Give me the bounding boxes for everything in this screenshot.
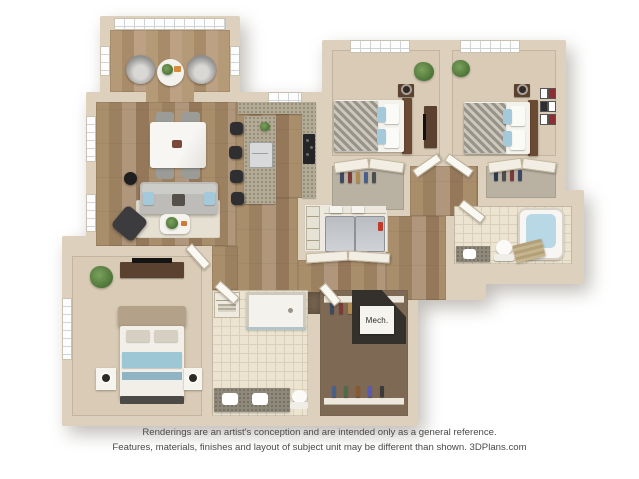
- hall-vanity-sink: [463, 249, 476, 259]
- master-pillow-2: [154, 330, 178, 342]
- coffee-table-plant: [166, 217, 178, 229]
- cooktop-burner-1: [306, 139, 309, 142]
- hall-floor-center: [236, 198, 298, 298]
- dining-centerpiece: [172, 140, 182, 148]
- gallery-frame-5: [540, 114, 548, 125]
- closet3-clothes-4: [518, 170, 522, 181]
- side-table: [124, 172, 137, 185]
- coffee-table-books: [181, 221, 187, 226]
- bedroom2-duvet: [334, 101, 378, 151]
- closet2-clothes-4: [364, 172, 368, 183]
- master-headboard: [118, 306, 186, 326]
- closet2-clothes-2: [348, 172, 352, 183]
- master-pillow-1: [126, 330, 150, 342]
- washer: [325, 216, 355, 252]
- laundry-basket-1: [330, 206, 342, 213]
- sunroom-window-right: [230, 46, 240, 76]
- master-toilet-tank: [290, 402, 308, 409]
- bar-stool-3: [230, 170, 243, 183]
- mechanical-unit-label: Mech.: [360, 306, 394, 334]
- kitchen-counter-top: [238, 102, 316, 114]
- bedroom3-lamp: [519, 86, 526, 93]
- cooktop: [303, 134, 315, 164]
- bar-stool-1: [230, 122, 243, 135]
- disclaimer-caption: Renderings are an artist's conception an…: [0, 425, 639, 455]
- sofa-pillow-blue-right: [204, 192, 215, 205]
- linen-towels: [218, 304, 236, 312]
- bedroom2-plant: [414, 62, 434, 81]
- bedroom3-window: [460, 40, 520, 53]
- master-dresser: [120, 262, 184, 278]
- sunroom-chair-left: [126, 55, 155, 84]
- master-bench: [120, 396, 184, 404]
- bedroom2-pillow-blue-2: [377, 129, 386, 144]
- bedroom2-pillow-blue-1: [377, 107, 386, 122]
- master-lamp-left: [102, 374, 110, 382]
- sunroom-window-wall: [114, 18, 226, 30]
- bedroom2-lamp: [403, 86, 410, 93]
- bedroom3-pillow-2: [510, 130, 525, 150]
- master-tv: [132, 258, 172, 263]
- wic-clothes-4: [332, 386, 336, 397]
- gallery-frame-2: [548, 88, 556, 99]
- hall-toilet-tank: [494, 254, 514, 261]
- sunroom-chair-right: [187, 55, 216, 84]
- gallery-frame-6: [548, 114, 556, 125]
- bedroom3-plant: [452, 60, 470, 77]
- pantry-shelf-line-1: [307, 216, 319, 217]
- bedroom2-tv: [423, 114, 426, 140]
- bedroom2-pillow-2: [384, 128, 399, 148]
- gallery-frame-1: [540, 88, 548, 99]
- wic-clothes-8: [380, 386, 384, 397]
- cooktop-burner-2: [310, 146, 313, 149]
- closet2-clothes-3: [356, 172, 360, 183]
- wic-clothes-6: [356, 386, 360, 397]
- floor-plan-image: Mech. Renderings are an artist's concept…: [0, 0, 639, 479]
- wic-clothes-2: [339, 303, 343, 314]
- island-plant: [260, 122, 270, 131]
- bar-stool-4: [231, 192, 244, 205]
- laundry-basket-2: [352, 206, 364, 213]
- island-sink: [249, 142, 273, 168]
- closet3-clothes-3: [510, 170, 514, 181]
- wic-clothes-7: [368, 386, 372, 397]
- wic-rail-bottom: [324, 398, 404, 404]
- cooktop-burner-3: [306, 153, 309, 156]
- sofa-pillow-blue-left: [143, 192, 154, 205]
- sunroom-window-left: [100, 46, 110, 76]
- closet2-clothes-1: [340, 172, 344, 183]
- master-blanket-blue: [122, 352, 182, 368]
- living-window-1: [86, 116, 96, 162]
- hall-floor-east: [386, 216, 446, 300]
- island-sink-divider: [252, 153, 268, 154]
- master-sink-right: [252, 393, 268, 405]
- bar-stool-2: [229, 146, 242, 159]
- master-sink-left: [222, 393, 238, 405]
- master-blanket-fold: [122, 372, 182, 380]
- bedroom3-pillow-1: [510, 106, 525, 126]
- living-window-2: [86, 194, 96, 232]
- closet3-clothes-2: [502, 170, 506, 181]
- gallery-frame-3: [540, 101, 548, 112]
- master-shower: [246, 292, 306, 330]
- wic-clothes-5: [344, 386, 348, 397]
- bedroom3-pillow-blue-2: [503, 131, 512, 146]
- shower-glass: [246, 327, 306, 330]
- bedroom3-pillow-blue-1: [503, 109, 512, 124]
- master-plant: [90, 266, 113, 288]
- sunroom-table-plant: [162, 64, 173, 75]
- shower-drain: [288, 308, 293, 313]
- bedroom3-duvet: [464, 103, 506, 153]
- hall-toilet-bowl: [496, 240, 512, 255]
- closet2-clothes-5: [372, 172, 376, 183]
- master-lamp-right: [189, 374, 197, 382]
- sunroom-table-tray: [174, 66, 181, 72]
- gallery-frame-4: [548, 101, 556, 112]
- pantry-shelf-line-3: [307, 240, 319, 241]
- master-bedroom-window: [62, 298, 72, 360]
- bedroom2-window: [350, 40, 410, 53]
- disclaimer-line-1: Renderings are an artist's conception an…: [0, 425, 639, 440]
- walk-in-closet-doorway: [308, 292, 320, 314]
- detergent-bottle: [378, 222, 383, 231]
- sofa-throw: [172, 194, 185, 206]
- disclaimer-line-2: Features, materials, finishes and layout…: [0, 440, 639, 455]
- wic-clothes-3: [348, 303, 352, 314]
- pantry-shelf-line-2: [307, 228, 319, 229]
- bedroom2-pillow-1: [384, 104, 399, 124]
